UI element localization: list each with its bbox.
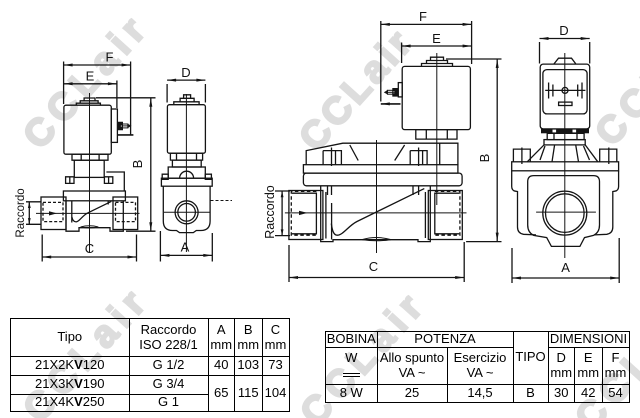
svg-text:D: D xyxy=(559,23,568,38)
svg-text:D: D xyxy=(181,65,190,80)
svg-text:A: A xyxy=(561,260,570,275)
svg-text:B: B xyxy=(477,154,492,163)
svg-text:F: F xyxy=(419,9,427,24)
svg-text:E: E xyxy=(432,31,441,46)
svg-text:Raccordo: Raccordo xyxy=(263,185,277,239)
svg-text:Raccordo: Raccordo xyxy=(15,188,27,237)
svg-text:F: F xyxy=(106,50,114,65)
svg-text:A: A xyxy=(181,240,190,255)
svg-text:C: C xyxy=(369,259,378,274)
svg-text:B: B xyxy=(130,160,145,169)
svg-text:E: E xyxy=(86,69,95,84)
